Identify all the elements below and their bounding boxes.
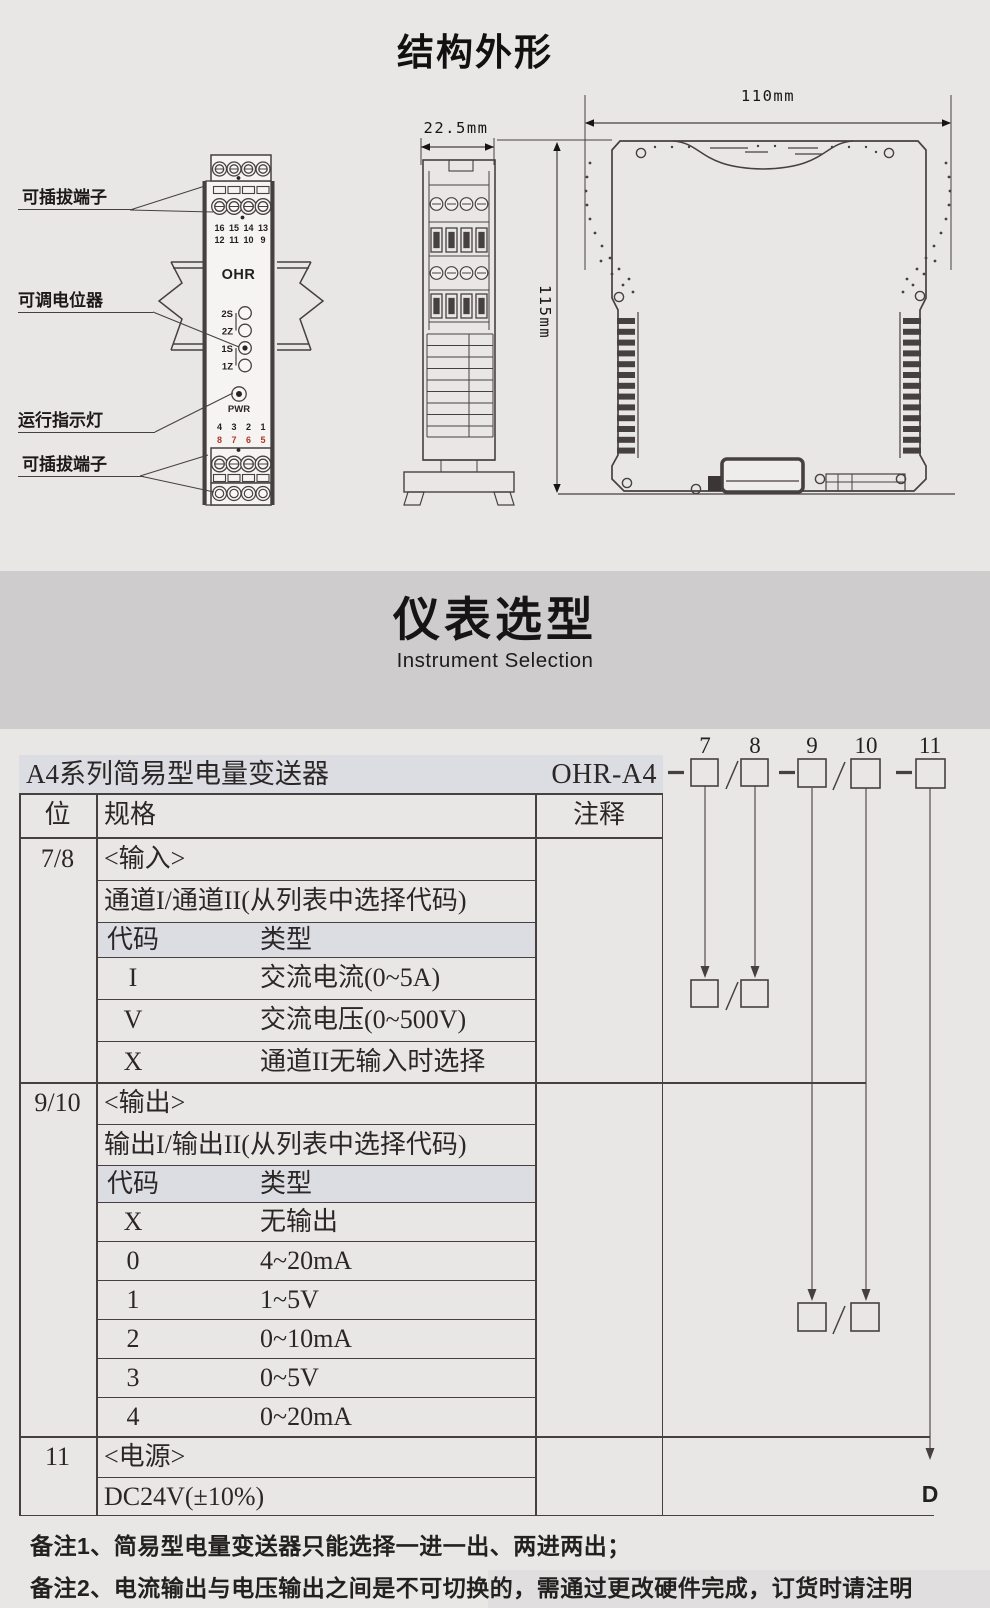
type-label-cell: 类型 xyxy=(260,922,312,957)
code-cell: X xyxy=(96,1041,170,1082)
datasheet-page: 结构外形 xyxy=(0,0,990,1608)
selection-banner: 仪表选型 Instrument Selection xyxy=(0,571,990,729)
col-header-note: 注释 xyxy=(535,793,663,837)
type-cell: 0~5V xyxy=(260,1358,319,1397)
banner-title: 仪表选型 xyxy=(0,589,990,651)
svg-text:8: 8 xyxy=(749,733,761,758)
svg-text:9: 9 xyxy=(806,733,818,758)
code-cell: V xyxy=(96,999,170,1041)
pos-cell: 11 xyxy=(19,1436,96,1477)
callout-run-indicator: 运行指示灯 xyxy=(18,410,155,433)
table-vline xyxy=(19,793,21,1516)
table-vline xyxy=(535,793,537,1516)
vent-slats xyxy=(617,318,921,454)
type-cell: 0~20mA xyxy=(260,1397,352,1436)
type-cell: 无输出 xyxy=(260,1202,338,1241)
dim-front-width: 110mm xyxy=(741,87,795,105)
svg-text:7: 7 xyxy=(231,435,236,445)
svg-text:6: 6 xyxy=(246,435,251,445)
code-label-cell: 代码 xyxy=(107,1165,159,1202)
svg-text:11: 11 xyxy=(229,235,239,245)
type-cell: 通道II无输入时选择 xyxy=(260,1041,485,1082)
brand-logo: OHR xyxy=(222,267,256,283)
svg-text:1: 1 xyxy=(260,422,265,432)
digit-labels: 7 8 9 10 11 xyxy=(699,733,941,758)
section-title-cell: <输出> xyxy=(104,1082,185,1124)
code-cell: 4 xyxy=(96,1397,170,1436)
svg-text:7: 7 xyxy=(699,733,711,758)
svg-text:13: 13 xyxy=(258,223,268,233)
col-header-spec: 规格 xyxy=(104,793,156,837)
svg-text:12: 12 xyxy=(214,235,224,245)
section-title-cell: <电源> xyxy=(104,1436,185,1477)
code-cell: I xyxy=(96,957,170,999)
note-2: 备注2、电流输出与电压输出之间是不可切换的，需通过更改硬件完成，订货时请注明 xyxy=(30,1572,913,1604)
section-desc-cell: DC24V(±10%) xyxy=(104,1477,264,1516)
code-cell: X xyxy=(96,1202,170,1241)
section-desc-cell: 通道I/通道II(从列表中选择代码) xyxy=(104,880,467,922)
svg-text:8: 8 xyxy=(217,435,222,445)
callout-pluggable-terminal-bottom: 可插拔端子 xyxy=(18,454,144,477)
power-code-d: D xyxy=(922,1481,939,1507)
structure-drawings: 22.5mm 110mm 115mm OHR 1615 1413 1211 10… xyxy=(0,0,990,566)
code-cell: 3 xyxy=(96,1358,170,1397)
type-cell: 交流电流(0~5A) xyxy=(260,957,440,999)
svg-text:1Z: 1Z xyxy=(222,362,233,373)
svg-text:16: 16 xyxy=(214,223,224,233)
front-view xyxy=(203,155,275,505)
svg-text:9: 9 xyxy=(260,235,265,245)
svg-text:2S: 2S xyxy=(221,309,233,320)
type-cell: 4~20mA xyxy=(260,1241,352,1280)
dim-side-width: 22.5mm xyxy=(424,119,489,137)
product-name: A4系列简易型电量变送器 xyxy=(26,755,329,794)
table-subline xyxy=(96,1165,535,1166)
col-header-pos: 位 xyxy=(19,793,96,837)
svg-text:3: 3 xyxy=(231,422,236,432)
table-vline xyxy=(662,793,664,1516)
svg-text:2Z: 2Z xyxy=(222,327,233,338)
pos-cell: 9/10 xyxy=(19,1082,96,1124)
model-prefix: OHR-A4 xyxy=(450,755,657,794)
type-cell: 交流电压(0~500V) xyxy=(260,999,466,1041)
dim-height: 115mm xyxy=(536,285,554,339)
section-title-cell: <输入> xyxy=(104,837,185,880)
code-header-band xyxy=(96,922,535,957)
type-cell: 1~5V xyxy=(260,1280,319,1319)
pwr-label: PWR xyxy=(228,404,250,415)
svg-text:4: 4 xyxy=(217,422,222,432)
code-cell: 1 xyxy=(96,1280,170,1319)
banner-subtitle: Instrument Selection xyxy=(0,649,990,673)
code-header-band xyxy=(96,1165,535,1202)
side-view xyxy=(404,138,514,505)
swing-arc-dots xyxy=(585,162,952,294)
callout-pluggable-terminal-top: 可插拔端子 xyxy=(18,187,134,210)
table-hline xyxy=(19,793,663,795)
svg-text:2: 2 xyxy=(246,422,251,432)
code-cell: 0 xyxy=(96,1241,170,1280)
large-side-view xyxy=(558,95,955,494)
note-1: 备注1、简易型电量变送器只能选择一进一出、两进两出； xyxy=(30,1530,631,1562)
svg-text:1S: 1S xyxy=(221,344,233,355)
code-label-cell: 代码 xyxy=(107,922,159,957)
svg-text:5: 5 xyxy=(260,435,265,445)
type-cell: 0~10mA xyxy=(260,1319,352,1358)
type-label-cell: 类型 xyxy=(260,1165,312,1202)
section-desc-cell: 输出I/输出II(从列表中选择代码) xyxy=(104,1124,467,1165)
code-cell: 2 xyxy=(96,1319,170,1358)
pos-cell: 7/8 xyxy=(19,837,96,880)
callout-potentiometer: 可调电位器 xyxy=(18,290,153,313)
svg-text:10: 10 xyxy=(243,235,253,245)
svg-text:14: 14 xyxy=(243,223,253,233)
svg-text:11: 11 xyxy=(919,733,941,758)
svg-text:15: 15 xyxy=(229,223,239,233)
din-clip xyxy=(722,459,803,492)
table-subline xyxy=(96,922,535,923)
svg-text:10: 10 xyxy=(855,733,878,758)
